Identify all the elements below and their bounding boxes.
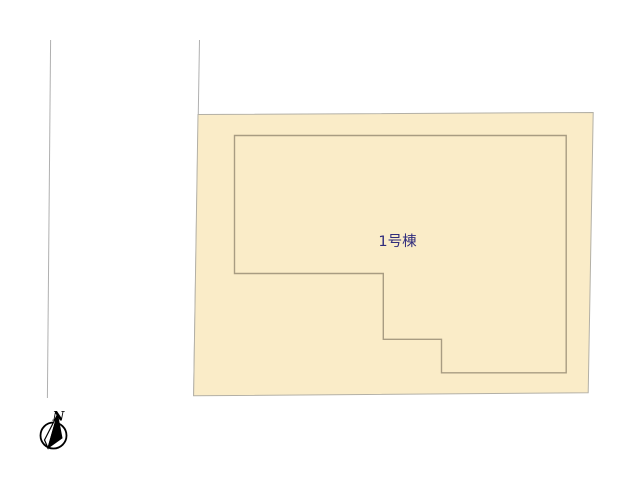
site-plan-page: 1号棟 N bbox=[0, 0, 640, 480]
site-plan-canvas: 1号棟 N bbox=[0, 0, 640, 480]
north-label: N bbox=[52, 410, 66, 425]
building-label: 1号棟 bbox=[378, 233, 417, 250]
